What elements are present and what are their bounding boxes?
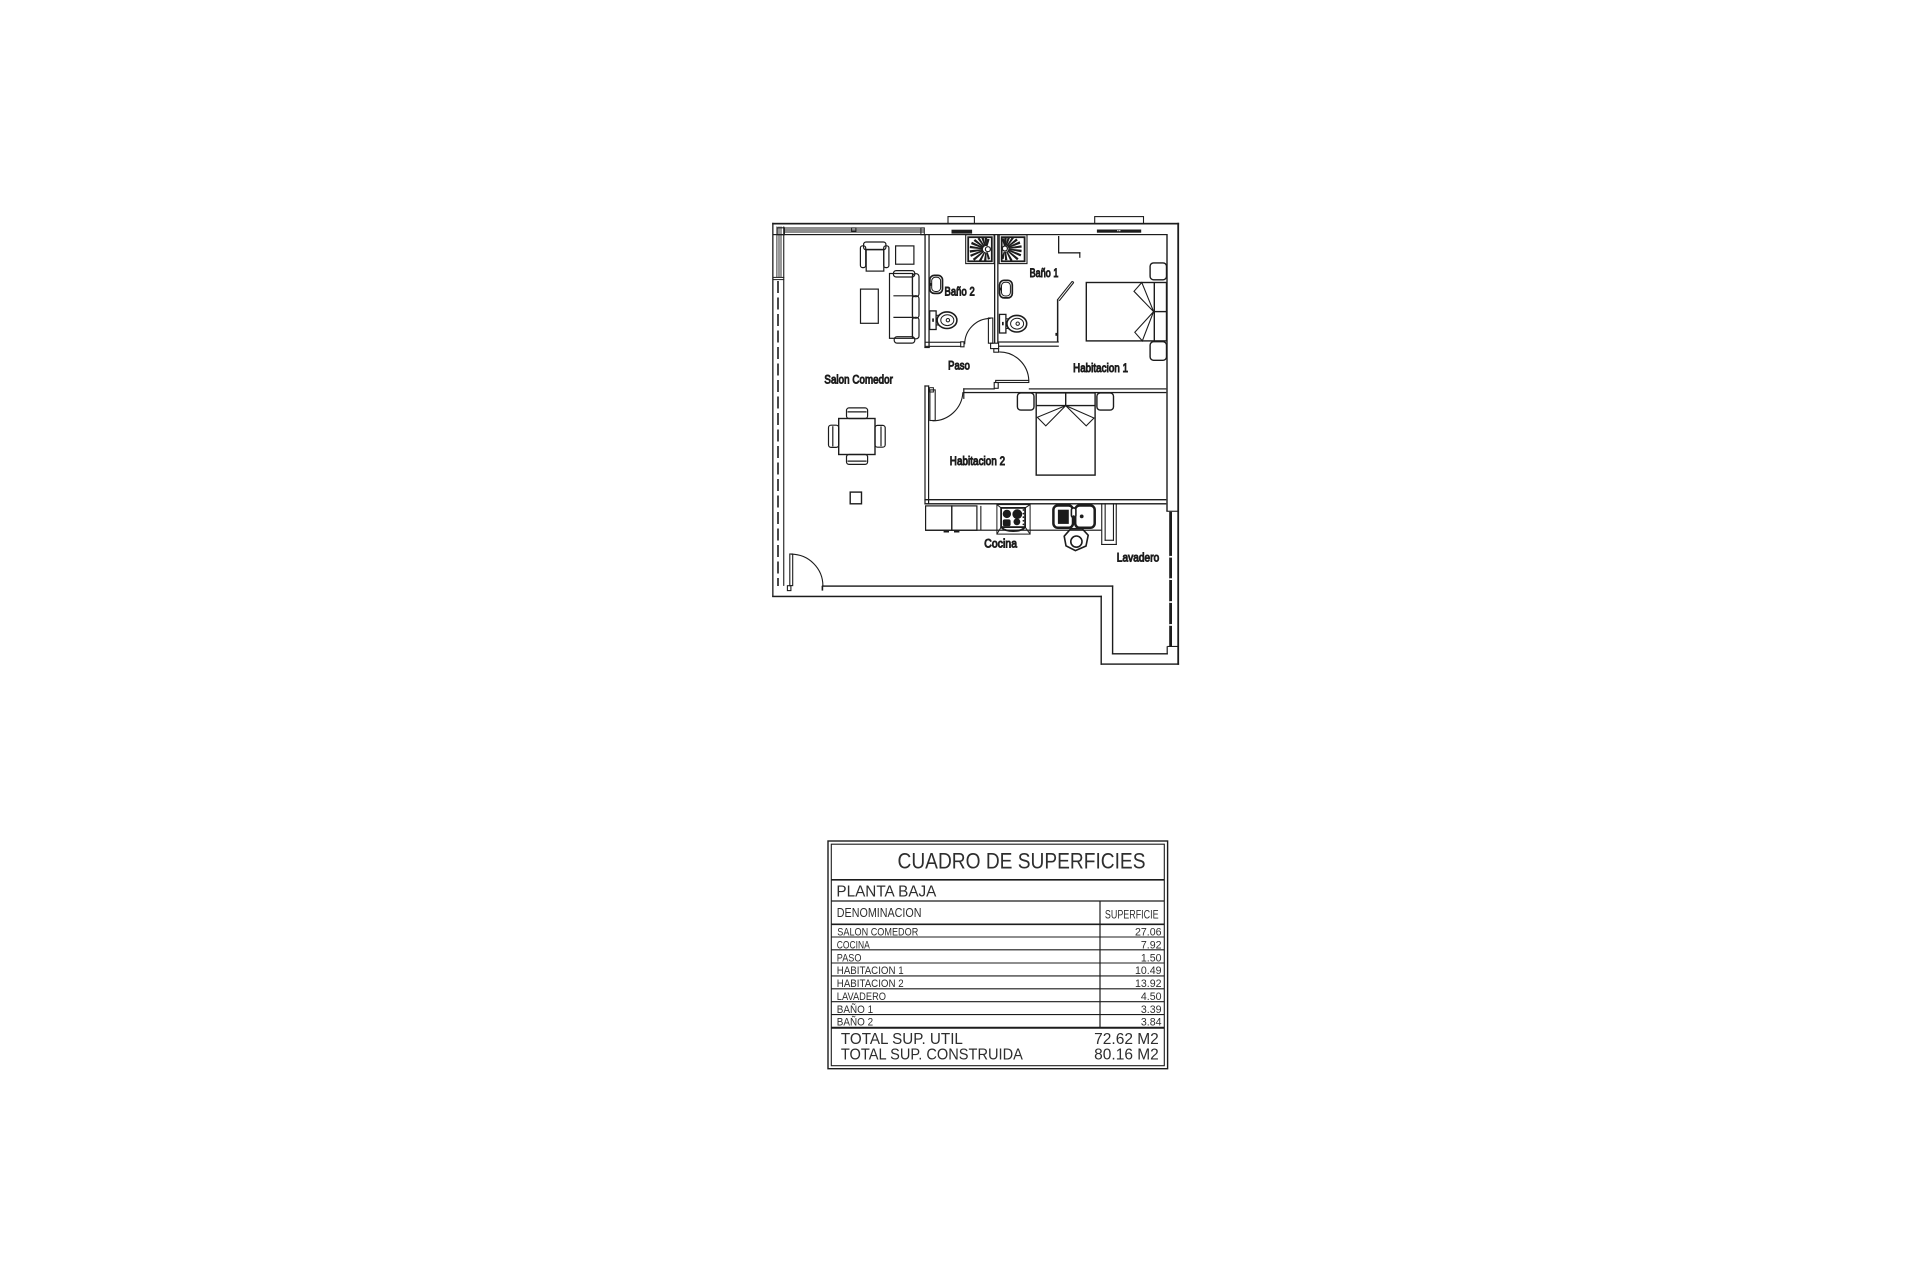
svg-text:3.39: 3.39 [1141, 1004, 1162, 1016]
svg-text:1.50: 1.50 [1141, 952, 1162, 964]
svg-text:Cocina: Cocina [984, 538, 1017, 550]
svg-text:LAVADERO: LAVADERO [837, 991, 886, 1003]
svg-text:TOTAL SUP. CONSTRUIDA: TOTAL SUP. CONSTRUIDA [841, 1046, 1024, 1063]
svg-text:27.06: 27.06 [1135, 927, 1162, 939]
svg-text:3.84: 3.84 [1141, 1017, 1162, 1029]
svg-text:80.16 M2: 80.16 M2 [1094, 1046, 1159, 1063]
svg-text:BAÑO 2: BAÑO 2 [837, 1016, 873, 1029]
svg-text:7.92: 7.92 [1141, 939, 1162, 951]
svg-text:BAÑO 1: BAÑO 1 [837, 1003, 873, 1016]
svg-text:Habitacion 2: Habitacion 2 [950, 456, 1005, 468]
svg-text:Lavadero: Lavadero [1117, 553, 1160, 565]
svg-text:13.92: 13.92 [1135, 978, 1162, 990]
svg-text:SALON COMEDOR: SALON COMEDOR [837, 927, 918, 939]
svg-text:CUADRO DE SUPERFICIES: CUADRO DE SUPERFICIES [898, 849, 1146, 874]
svg-text:SUPERFICIE: SUPERFICIE [1105, 910, 1159, 922]
svg-text:TOTAL SUP. UTIL: TOTAL SUP. UTIL [841, 1031, 963, 1048]
svg-text:HABITACION 2: HABITACION 2 [837, 978, 904, 990]
svg-text:PLANTA BAJA: PLANTA BAJA [836, 883, 937, 900]
svg-text:10.49: 10.49 [1135, 965, 1162, 977]
svg-text:DENOMINACION: DENOMINACION [837, 906, 922, 920]
svg-text:HABITACION 1: HABITACION 1 [837, 965, 904, 977]
svg-text:Paso: Paso [948, 361, 970, 373]
svg-text:Baño 2: Baño 2 [945, 286, 975, 298]
svg-text:PASO: PASO [837, 952, 862, 964]
svg-text:Habitacion 1: Habitacion 1 [1073, 363, 1128, 375]
svg-text:Baño 1: Baño 1 [1030, 268, 1059, 280]
svg-text:4.50: 4.50 [1141, 991, 1162, 1003]
svg-text:72.62 M2: 72.62 M2 [1094, 1031, 1159, 1048]
svg-text:COCINA: COCINA [837, 939, 871, 951]
svg-text:Salon Comedor: Salon Comedor [824, 374, 893, 386]
